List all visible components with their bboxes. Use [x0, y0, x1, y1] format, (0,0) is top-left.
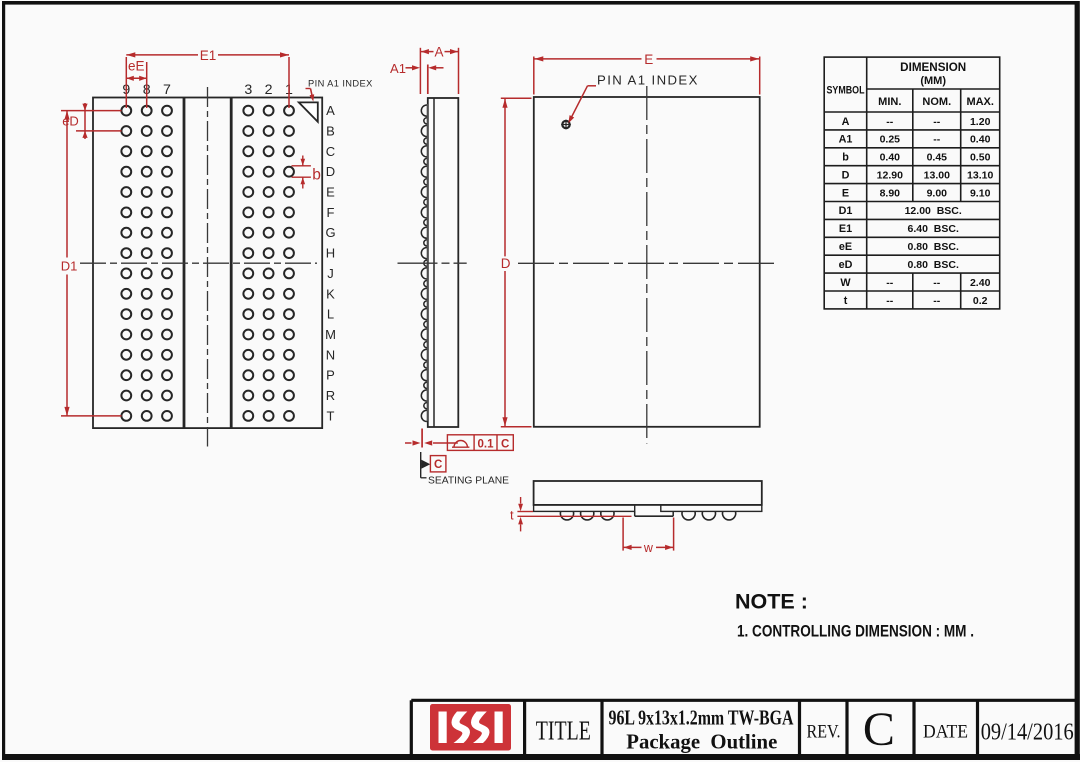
svg-text:8.90: 8.90: [880, 187, 901, 199]
svg-text:H: H: [326, 246, 335, 261]
svg-text:0.80 BSC.: 0.80 BSC.: [908, 259, 959, 271]
svg-text:E1: E1: [200, 48, 217, 63]
svg-text:b: b: [842, 152, 849, 164]
svg-text:96L 9x13x1.2mm TW-BGA: 96L 9x13x1.2mm TW-BGA: [609, 706, 795, 730]
svg-text:6.40 BSC.: 6.40 BSC.: [908, 223, 959, 235]
svg-text:eD: eD: [62, 114, 79, 129]
svg-text:0.25: 0.25: [880, 134, 901, 146]
svg-text:2.40: 2.40: [970, 277, 991, 289]
svg-text:DIMENSION: DIMENSION: [900, 62, 966, 74]
svg-text:C: C: [863, 703, 895, 756]
svg-text:D: D: [326, 164, 335, 179]
svg-text:9.10: 9.10: [970, 187, 991, 199]
svg-text:D: D: [501, 256, 511, 271]
svg-text:1. CONTROLLING DIMENSION : MM: 1. CONTROLLING DIMENSION : MM .: [737, 623, 974, 641]
svg-text:E1: E1: [839, 223, 852, 235]
svg-text:A: A: [326, 103, 335, 118]
svg-text:P: P: [326, 368, 335, 383]
svg-text:2: 2: [265, 82, 273, 98]
svg-text:0.1: 0.1: [478, 438, 495, 450]
svg-text:REV.: REV.: [807, 722, 841, 743]
svg-text:M: M: [325, 327, 336, 342]
svg-text:b: b: [312, 167, 321, 184]
svg-text:B: B: [326, 124, 335, 139]
svg-text:PIN A1 INDEX: PIN A1 INDEX: [597, 73, 699, 88]
svg-text:NOTE :: NOTE :: [735, 590, 808, 614]
svg-text:L: L: [327, 307, 334, 322]
svg-text:D1: D1: [61, 259, 78, 274]
svg-text:DATE: DATE: [923, 722, 968, 743]
svg-text:--: --: [933, 277, 940, 289]
svg-text:C: C: [501, 438, 509, 450]
svg-text:C: C: [434, 459, 442, 471]
svg-text:0.40: 0.40: [880, 152, 901, 164]
svg-text:TITLE: TITLE: [536, 716, 591, 746]
svg-text:13.10: 13.10: [967, 169, 993, 181]
svg-text:R: R: [326, 388, 335, 403]
svg-text:A1: A1: [390, 61, 406, 76]
svg-text:--: --: [886, 277, 893, 289]
svg-text:0.2: 0.2: [973, 295, 988, 307]
svg-text:13.00: 13.00: [924, 169, 950, 181]
svg-text:PIN A1 INDEX: PIN A1 INDEX: [308, 79, 373, 89]
svg-text:9.00: 9.00: [927, 187, 948, 199]
svg-text:t: t: [844, 295, 848, 307]
svg-text:A: A: [434, 45, 443, 60]
svg-text:A1: A1: [839, 134, 853, 146]
svg-text:--: --: [886, 116, 893, 128]
svg-text:T: T: [327, 408, 335, 423]
svg-text:NOM.: NOM.: [922, 96, 951, 108]
svg-text:N: N: [326, 347, 335, 362]
svg-text:E: E: [644, 52, 653, 67]
svg-text:SEATING PLANE: SEATING PLANE: [428, 476, 509, 487]
svg-text:1.20: 1.20: [970, 116, 991, 128]
svg-text:eE: eE: [128, 59, 145, 74]
svg-text:K: K: [326, 286, 335, 301]
svg-text:0.50: 0.50: [970, 152, 991, 164]
svg-text:0.80 BSC.: 0.80 BSC.: [908, 241, 959, 253]
svg-text:A: A: [842, 116, 850, 128]
svg-text:E: E: [842, 187, 849, 199]
svg-text:09/14/2016: 09/14/2016: [981, 720, 1074, 746]
svg-text:D: D: [842, 169, 850, 181]
svg-text:w: w: [643, 541, 654, 555]
svg-text:--: --: [933, 134, 940, 146]
svg-text:MAX.: MAX.: [966, 96, 994, 108]
svg-text:E: E: [326, 185, 335, 200]
svg-text:--: --: [933, 116, 940, 128]
svg-text:--: --: [886, 295, 893, 307]
svg-text:t: t: [510, 508, 514, 523]
svg-text:0.40: 0.40: [970, 134, 991, 146]
svg-text:MIN.: MIN.: [878, 96, 901, 108]
svg-text:W: W: [840, 277, 851, 289]
svg-text:C: C: [326, 144, 335, 159]
svg-text:12.90: 12.90: [877, 169, 903, 181]
svg-text:D1: D1: [839, 205, 853, 217]
svg-text:7: 7: [163, 82, 171, 98]
svg-text:Package Outline: Package Outline: [626, 730, 777, 754]
svg-text:G: G: [325, 225, 335, 240]
svg-text:J: J: [327, 266, 334, 281]
svg-text:eD: eD: [839, 259, 853, 271]
svg-text:12.00 BSC.: 12.00 BSC.: [905, 205, 962, 217]
svg-text:0.45: 0.45: [927, 152, 948, 164]
svg-text:eE: eE: [839, 241, 852, 253]
svg-text:(MM): (MM): [920, 75, 946, 87]
svg-text:3: 3: [244, 82, 252, 98]
svg-text:SYMBOL: SYMBOL: [827, 85, 865, 97]
svg-text:F: F: [327, 205, 335, 220]
svg-text:--: --: [933, 295, 940, 307]
